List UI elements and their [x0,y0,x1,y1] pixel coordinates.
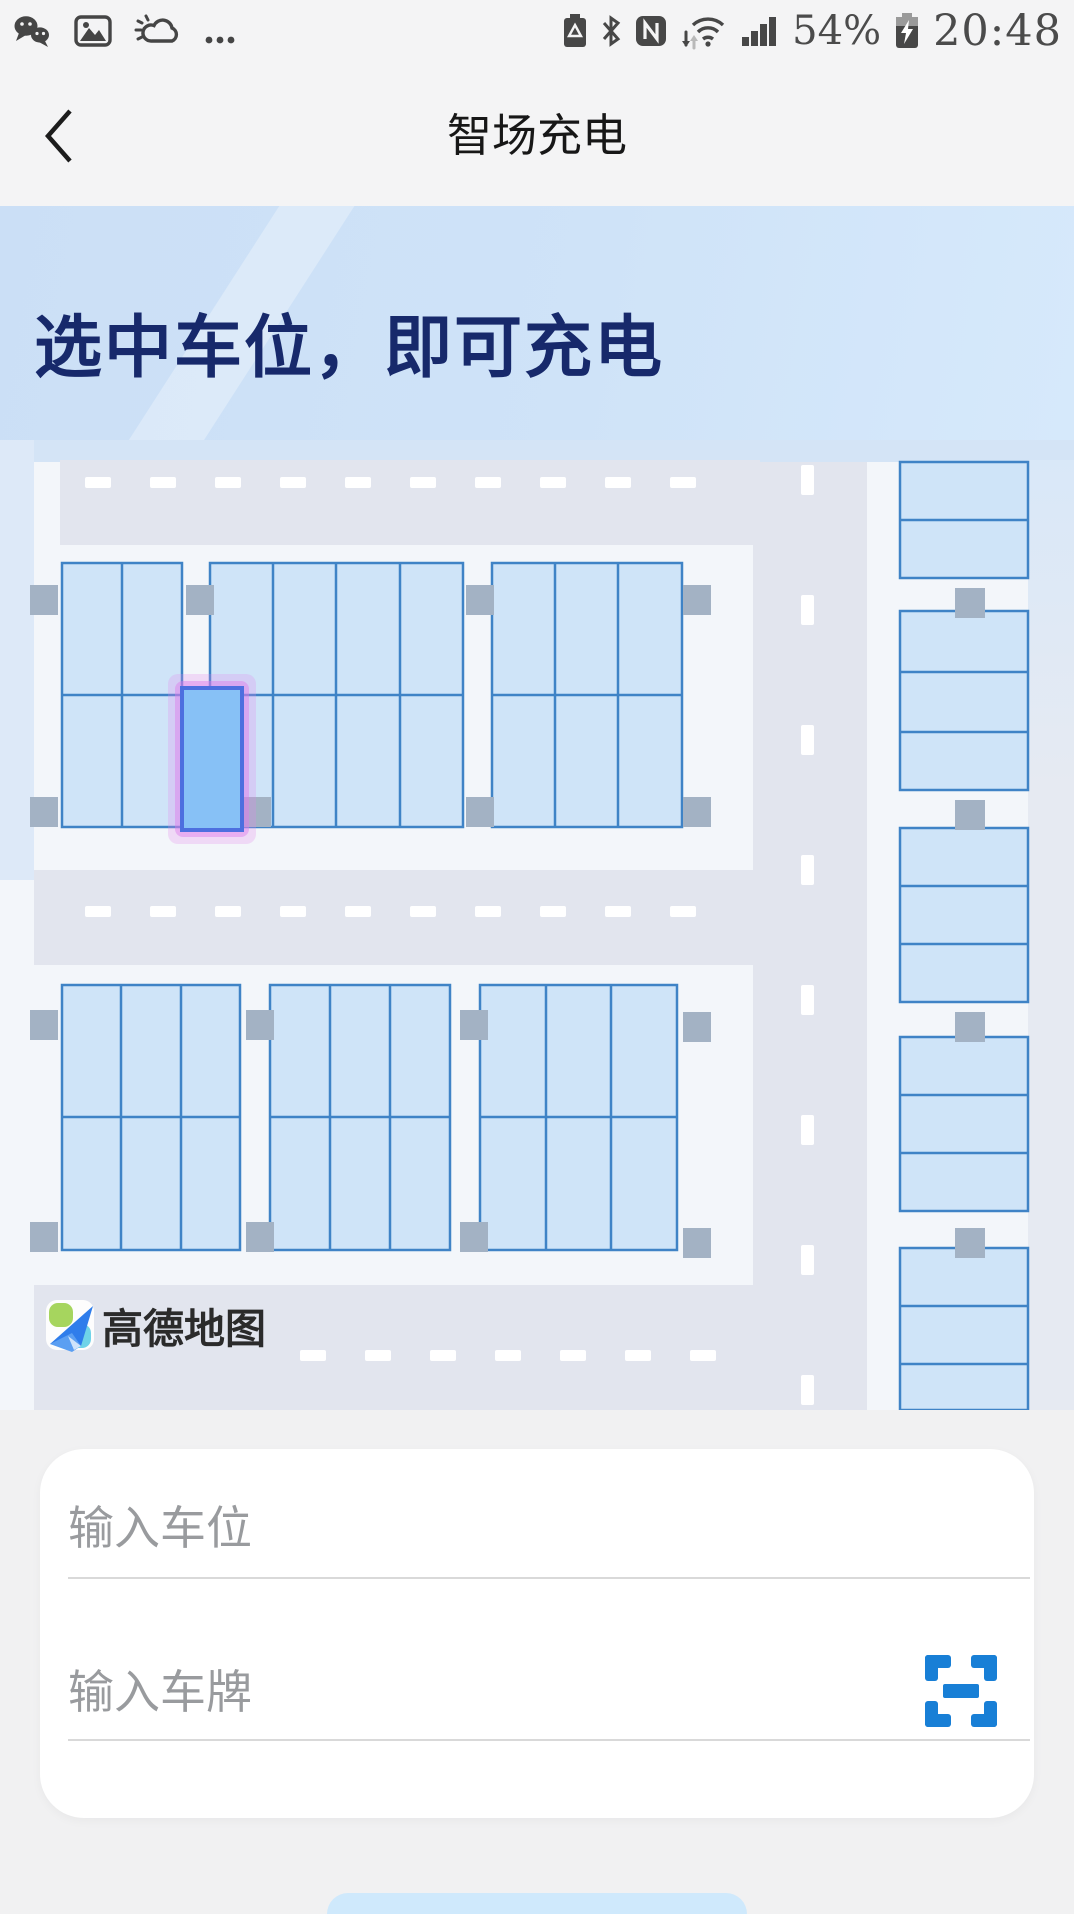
wifi-icon [680,12,728,50]
hero-headline: 选中车位，即可充电 [34,292,664,391]
nav-bar: 智场充电 [0,62,1074,206]
stall-group-top-left [62,563,182,827]
page-title: 智场充电 [0,62,1074,206]
stall-group-top-right [492,563,682,827]
status-bar: 54% 20:48 [0,0,1074,62]
more-notifications-icon [204,14,236,48]
selected-parking-spot[interactable] [168,674,256,844]
weather-icon [134,14,182,48]
parking-spot-input[interactable] [68,1479,1030,1579]
stall-group-bottom-right [480,985,677,1250]
app-screen: 54% 20:48 智场充电 选中车位，即可充电 [0,0,1074,1914]
gallery-icon [74,14,112,48]
scan-frame-icon [923,1653,999,1729]
bluetooth-icon [600,13,622,49]
battery-charging-icon [893,12,921,50]
map-provider-label: 高德地图 [102,1306,266,1352]
stall-group-bottom-left [62,985,240,1250]
nfc-icon [634,13,668,49]
battery-saver-icon [562,13,588,49]
charge-action-button[interactable] [327,1893,747,1914]
map-provider-logo: 高德地图 [46,1300,266,1352]
wechat-icon [12,14,52,48]
clock: 20:48 [933,0,1062,62]
license-plate-input[interactable] [68,1645,1030,1741]
charge-form-card [40,1449,1034,1818]
battery-percent: 54% [792,0,881,62]
hero-banner: 选中车位，即可充电 [0,206,1074,440]
signal-bars-icon [740,13,780,49]
stall-group-bottom-mid [270,985,450,1250]
parking-map[interactable]: 高德地图 [0,440,1074,1410]
scan-plate-button[interactable] [923,1653,999,1729]
